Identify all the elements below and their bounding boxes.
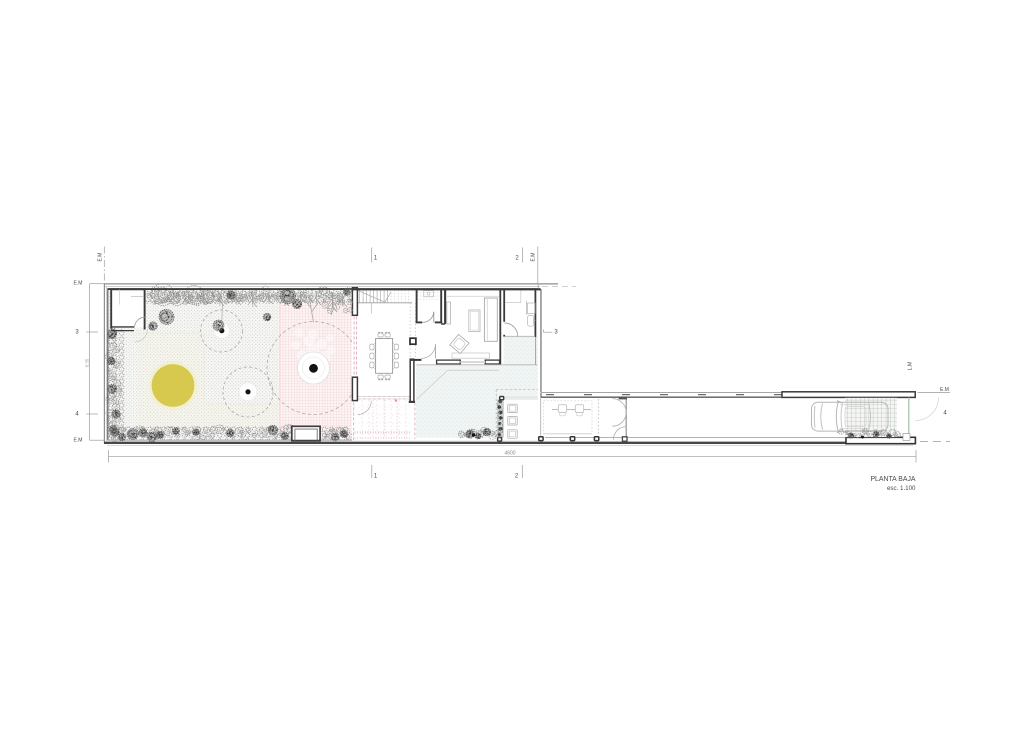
svg-text:PLANTA BAJA: PLANTA BAJA — [870, 476, 915, 483]
svg-text:E.M: E.M — [74, 438, 83, 444]
svg-text:4600: 4600 — [504, 451, 515, 457]
svg-text:esc. 1.100: esc. 1.100 — [887, 485, 916, 492]
svg-text:E.M: E.M — [74, 281, 83, 287]
svg-text:E.M: E.M — [98, 253, 104, 262]
svg-text:E.M: E.M — [531, 253, 537, 262]
svg-text:L.M: L.M — [908, 362, 914, 371]
svg-text:8.35: 8.35 — [85, 358, 90, 367]
svg-text:E.M: E.M — [940, 387, 949, 393]
